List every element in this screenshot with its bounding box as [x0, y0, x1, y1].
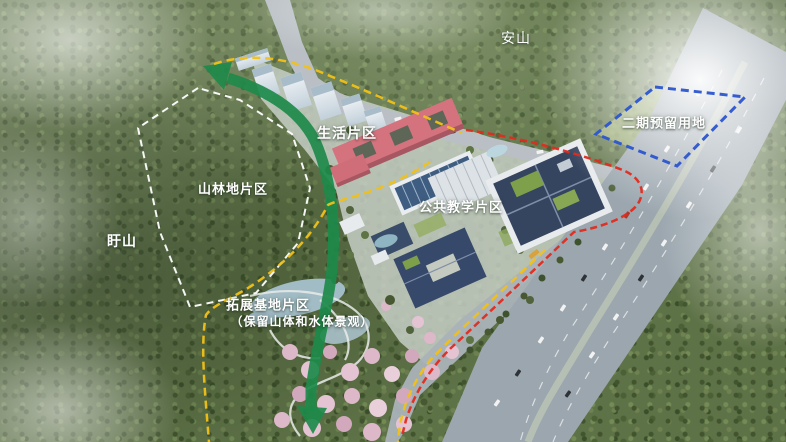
forest-zone-boundary	[138, 88, 310, 307]
label-base-zone-line1: 拓展基地片区	[226, 295, 310, 314]
label-forest-zone: 山林地片区	[198, 179, 268, 198]
label-base-zone-line2: （保留山体和水体景观）	[230, 313, 373, 330]
label-phase2-reserved: 二期预留用地	[622, 113, 706, 132]
axis-arrow-head-top	[203, 62, 232, 90]
label-teaching-zone: 公共教学片区	[419, 197, 503, 216]
campus-boundary	[203, 58, 545, 442]
annotation-layer	[0, 0, 786, 442]
label-anshan: 安山	[501, 28, 531, 48]
label-xushan: 盱山	[107, 231, 137, 251]
label-living-zone: 生活片区	[317, 123, 377, 143]
masterplan-rendering: 安山 二期预留用地 生活片区 山林地片区 盱山 公共教学片区 拓展基地片区 （保…	[0, 0, 786, 442]
axis-arrow-head-bottom	[297, 406, 327, 434]
site-redline-boundary	[402, 130, 642, 436]
